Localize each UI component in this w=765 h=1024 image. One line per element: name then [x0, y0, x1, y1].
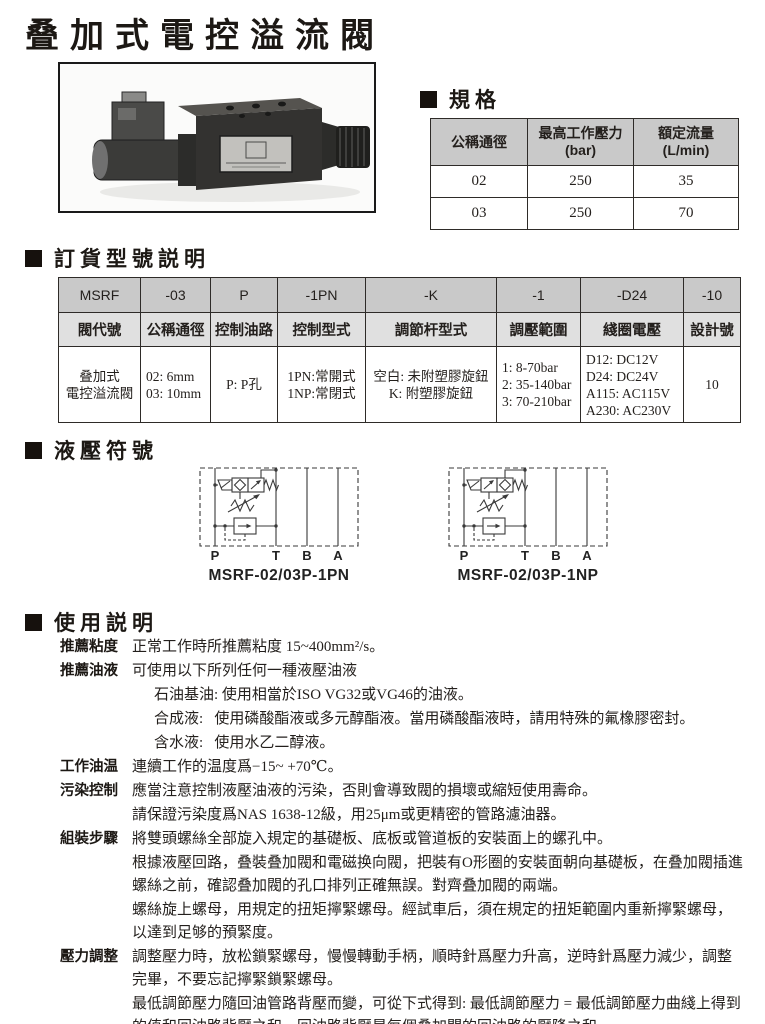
port-label-b: B: [302, 548, 311, 563]
order-value-cell: 空白: 未附塑膠旋鈕 K: 附塑膠旋鈕: [366, 347, 497, 423]
port-label-a: A: [582, 548, 592, 563]
spec-cell: 03: [431, 198, 528, 230]
spec-col-header: 最高工作壓力 (bar): [528, 119, 634, 166]
usage-text: 連續工作的温度爲−15~ +70℃。: [132, 756, 744, 779]
order-code-cell: -D24: [581, 278, 684, 313]
usage-text: 石油基油: 使用相當於ISO VG32或VG46的油液。: [132, 684, 744, 707]
spec-col-header: 公稱通徑: [431, 119, 528, 166]
section-title: 規格: [449, 84, 501, 114]
order-label-cell: 設計號: [684, 313, 741, 347]
usage-instructions: 推薦粘度 正常工作時所推薦粘度 15~400mm²/s。 推薦油液 可使用以下所…: [60, 636, 744, 1024]
order-value-cell: 10: [684, 347, 741, 423]
order-code-cell: -10: [684, 278, 741, 313]
valve-photo-illustration: [60, 64, 374, 211]
usage-label: 組裝步驟: [60, 828, 132, 851]
section-marker-icon: [420, 91, 437, 108]
page-title: 叠加式電控溢流閥: [25, 8, 385, 57]
order-label-cell: 控制油路: [211, 313, 278, 347]
usage-label: 推薦粘度: [60, 636, 132, 659]
product-photo: [58, 62, 376, 213]
usage-label: 工作油温: [60, 756, 132, 779]
table-row: 02 250 35: [431, 166, 739, 198]
port-label-t: T: [272, 548, 280, 563]
circuit-diagram-1pn: P T B A: [193, 462, 365, 564]
diagram-caption: MSRF-02/03P-1NP: [442, 567, 614, 585]
order-code-cell: -K: [366, 278, 497, 313]
order-value-cell: 叠加式 電控溢流閥: [59, 347, 141, 423]
usage-text: 應當注意控制液壓油液的污染，否則會導致閥的損壞或縮短使用壽命。: [132, 780, 744, 803]
usage-text: 含水液: 使用水乙二醇液。: [132, 732, 744, 755]
usage-row: 推薦粘度 正常工作時所推薦粘度 15~400mm²/s。: [60, 636, 744, 659]
usage-text: 最低調節壓力隨回油管路背壓而變，可從下式得到: 最低調節壓力 = 最低調節壓力曲…: [132, 993, 744, 1024]
order-code-cell: MSRF: [59, 278, 141, 313]
usage-text: 調整壓力時，放松鎖緊螺母，慢慢轉動手柄，順時針爲壓力升高，逆時針爲壓力減少，調整…: [132, 946, 744, 992]
section-ordering: 訂貨型號説明: [25, 243, 210, 273]
order-label-cell: 調壓範圍: [497, 313, 581, 347]
table-row: 03 250 70: [431, 198, 739, 230]
usage-row: 推薦油液 可使用以下所列任何一種液壓油液: [60, 660, 744, 683]
order-code-table: MSRF -03 P -1PN -K -1 -D24 -10 閥代號 公稱通徑 …: [58, 277, 741, 423]
usage-text: 正常工作時所推薦粘度 15~400mm²/s。: [132, 636, 744, 659]
usage-row: 合成液: 使用磷酸酯液或多元醇酯液。當用磷酸酯液時，請用特殊的氟橡膠密封。: [60, 708, 744, 731]
section-specs: 規格: [420, 84, 501, 114]
usage-row: 螺絲旋上螺母，用規定的扭矩擰緊螺母。經試車后，須在規定的扭矩範圍内重新擰緊螺母，…: [60, 899, 744, 945]
order-value-cell: 02: 6mm 03: 10mm: [141, 347, 211, 423]
order-value-cell: D12: DC12V D24: DC24V A115: AC115V A230:…: [581, 347, 684, 423]
diagram-caption: MSRF-02/03P-1PN: [193, 567, 365, 585]
circuit-diagram-1np: P T B A: [442, 462, 614, 564]
usage-row: 工作油温 連續工作的温度爲−15~ +70℃。: [60, 756, 744, 779]
table-row: MSRF -03 P -1PN -K -1 -D24 -10: [59, 278, 741, 313]
usage-row: 組裝步驟 將雙頭螺絲全部旋入規定的基礎板、底板或管道板的安裝面上的螺孔中。: [60, 828, 744, 851]
section-title: 液壓符號: [54, 435, 158, 465]
port-label-a: A: [333, 548, 343, 563]
usage-text: 可使用以下所列任何一種液壓油液: [132, 660, 744, 683]
usage-label: 壓力調整: [60, 946, 132, 969]
section-marker-icon: [25, 614, 42, 631]
usage-row: 石油基油: 使用相當於ISO VG32或VG46的油液。: [60, 684, 744, 707]
usage-row: 壓力調整 調整壓力時，放松鎖緊螺母，慢慢轉動手柄，順時針爲壓力升高，逆時針爲壓力…: [60, 946, 744, 992]
order-value-cell: 1: 8-70bar 2: 35-140bar 3: 70-210bar: [497, 347, 581, 423]
order-value-cell: P: P孔: [211, 347, 278, 423]
usage-row: 含水液: 使用水乙二醇液。: [60, 732, 744, 755]
usage-text: 螺絲旋上螺母，用規定的扭矩擰緊螺母。經試車后，須在規定的扭矩範圍内重新擰緊螺母，…: [132, 899, 744, 945]
usage-label: 污染控制: [60, 780, 132, 803]
section-symbols: 液壓符號: [25, 435, 158, 465]
usage-text: 根據液壓回路，叠裝叠加閥和電磁换向閥，把裝有O形圈的安裝面朝向基礎板，在叠加閥插…: [132, 852, 744, 898]
usage-text: 請保證污染度爲NAS 1638-12級，用25μm或更精密的管路濾油器。: [132, 804, 744, 827]
usage-label: 推薦油液: [60, 660, 132, 683]
table-row: 叠加式 電控溢流閥 02: 6mm 03: 10mm P: P孔 1PN:常開式…: [59, 347, 741, 423]
port-label-p: P: [460, 548, 469, 563]
order-code-cell: -03: [141, 278, 211, 313]
spec-col-header: 額定流量 (L/min): [634, 119, 739, 166]
section-marker-icon: [25, 250, 42, 267]
order-code-cell: -1: [497, 278, 581, 313]
order-label-cell: 公稱通徑: [141, 313, 211, 347]
order-value-cell: 1PN:常開式 1NP:常閉式: [278, 347, 366, 423]
hydraulic-symbol-1pn: P T B A MSRF-02/03P-1PN: [193, 462, 365, 585]
order-label-cell: 閥代號: [59, 313, 141, 347]
order-label-cell: 控制型式: [278, 313, 366, 347]
spec-cell: 35: [634, 166, 739, 198]
usage-row: 污染控制 應當注意控制液壓油液的污染，否則會導致閥的損壞或縮短使用壽命。: [60, 780, 744, 803]
table-row: 閥代號 公稱通徑 控制油路 控制型式 調節杆型式 調壓範圍 綫圈電壓 設計號: [59, 313, 741, 347]
order-label-cell: 綫圈電壓: [581, 313, 684, 347]
spec-cell: 02: [431, 166, 528, 198]
port-label-t: T: [521, 548, 529, 563]
usage-text: 將雙頭螺絲全部旋入規定的基礎板、底板或管道板的安裝面上的螺孔中。: [132, 828, 744, 851]
spec-cell: 250: [528, 166, 634, 198]
section-title: 訂貨型號説明: [54, 243, 210, 273]
spec-cell: 250: [528, 198, 634, 230]
spec-cell: 70: [634, 198, 739, 230]
order-code-cell: -1PN: [278, 278, 366, 313]
usage-row: 最低調節壓力隨回油管路背壓而變，可從下式得到: 最低調節壓力 = 最低調節壓力曲…: [60, 993, 744, 1024]
order-label-cell: 調節杆型式: [366, 313, 497, 347]
section-usage: 使用説明: [25, 607, 158, 637]
hydraulic-symbol-1np: P T B A MSRF-02/03P-1NP: [442, 462, 614, 585]
usage-row: 根據液壓回路，叠裝叠加閥和電磁换向閥，把裝有O形圈的安裝面朝向基礎板，在叠加閥插…: [60, 852, 744, 898]
section-marker-icon: [25, 442, 42, 459]
section-title: 使用説明: [54, 607, 158, 637]
datasheet-page: 叠加式電控溢流閥: [0, 0, 765, 1024]
usage-row: 請保證污染度爲NAS 1638-12級，用25μm或更精密的管路濾油器。: [60, 804, 744, 827]
specs-table: 公稱通徑 最高工作壓力 (bar) 額定流量 (L/min) 02 250 35…: [430, 118, 739, 230]
port-label-b: B: [551, 548, 560, 563]
order-code-cell: P: [211, 278, 278, 313]
port-label-p: P: [211, 548, 220, 563]
usage-text: 合成液: 使用磷酸酯液或多元醇酯液。當用磷酸酯液時，請用特殊的氟橡膠密封。: [132, 708, 744, 731]
